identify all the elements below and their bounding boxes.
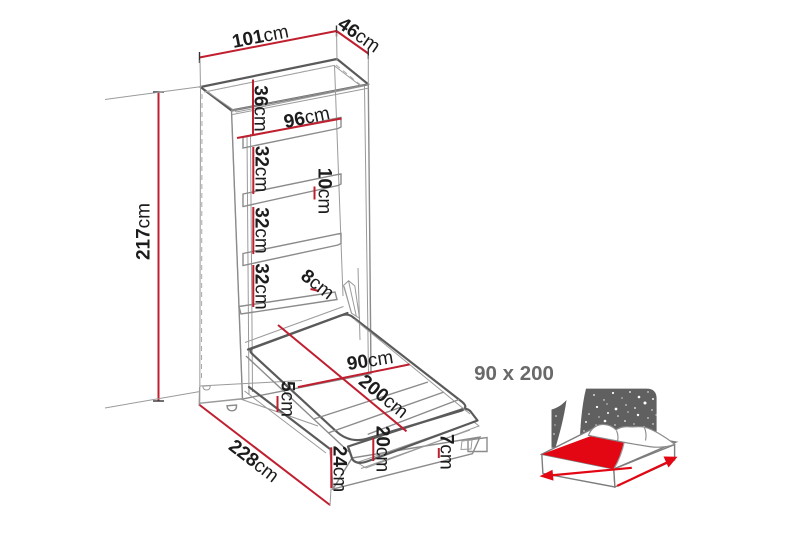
- svg-text:32cm: 32cm: [250, 207, 271, 253]
- svg-text:90 x 200: 90 x 200: [474, 362, 554, 385]
- svg-text:32cm: 32cm: [250, 146, 271, 192]
- svg-text:36cm: 36cm: [250, 85, 271, 131]
- svg-text:20cm: 20cm: [372, 426, 393, 472]
- svg-text:10cm: 10cm: [314, 168, 335, 214]
- svg-text:32cm: 32cm: [250, 263, 271, 309]
- svg-text:217cm: 217cm: [134, 203, 155, 260]
- svg-text:5cm: 5cm: [277, 381, 298, 417]
- svg-text:24cm: 24cm: [329, 446, 350, 492]
- svg-text:7cm: 7cm: [436, 434, 457, 470]
